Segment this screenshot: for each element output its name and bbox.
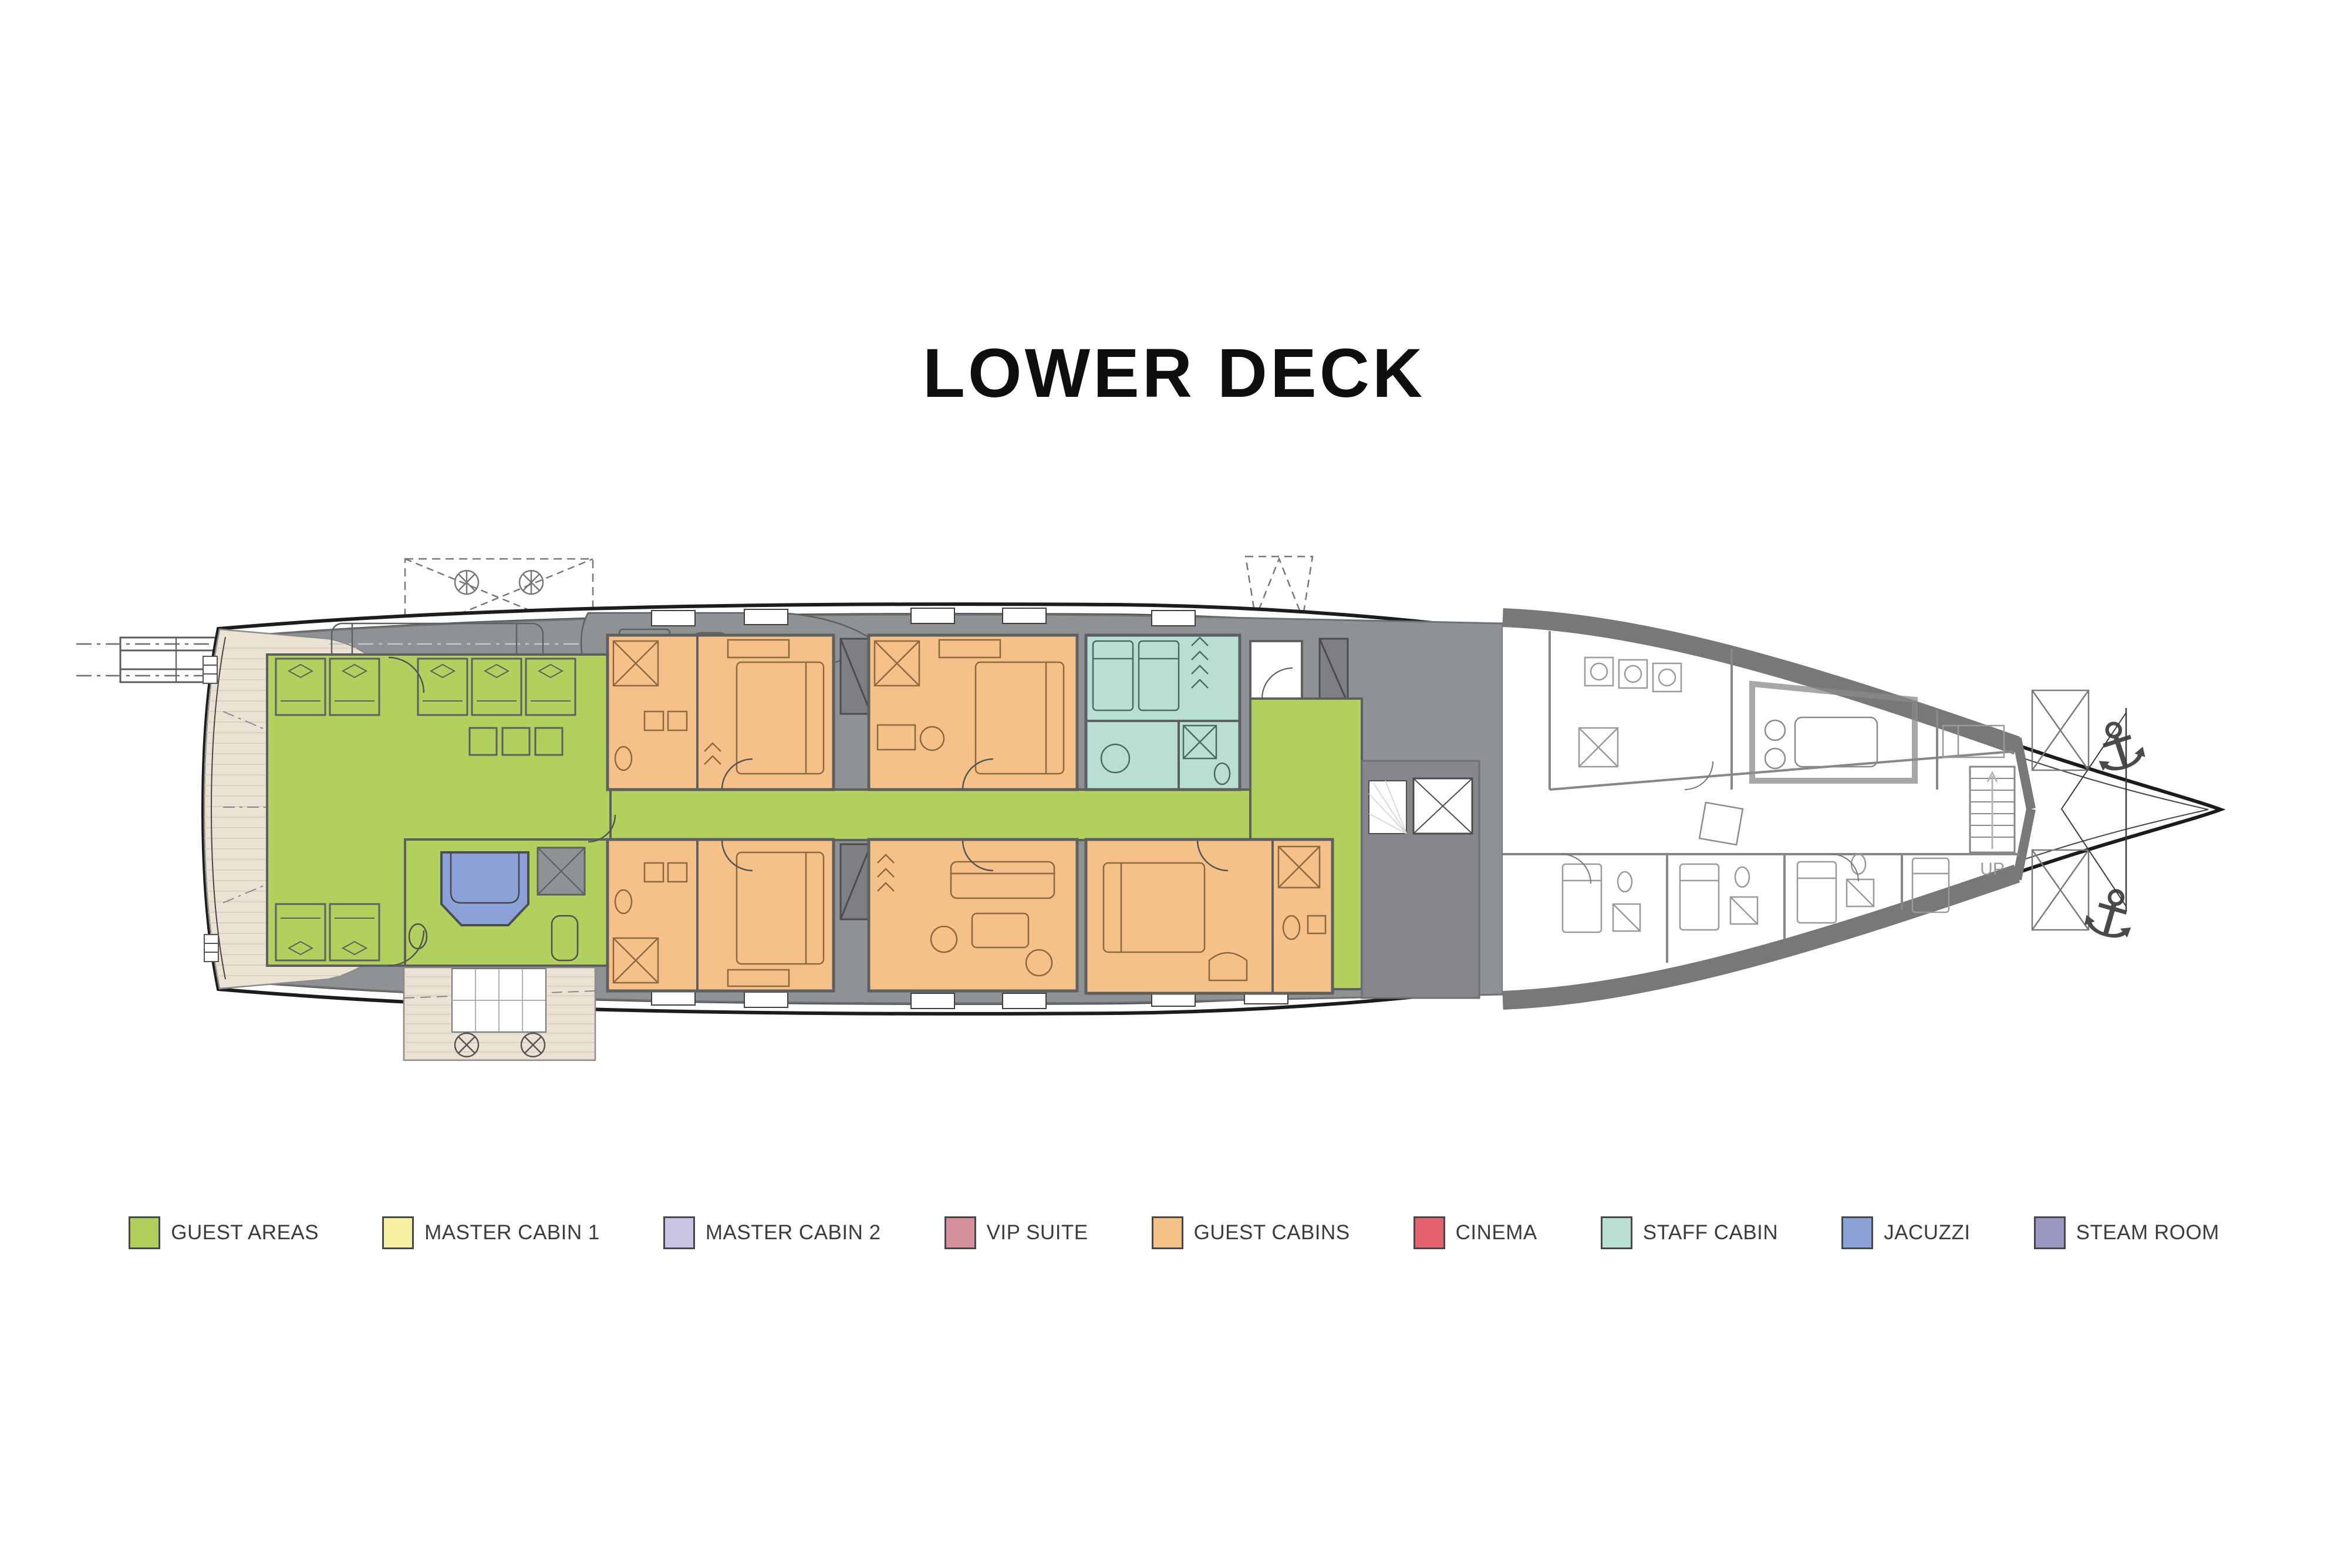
spa-shower	[538, 848, 585, 895]
winch-icon	[455, 571, 478, 594]
legend-label: JACUZZI	[1884, 1221, 1970, 1245]
staff-cabin	[1086, 635, 1240, 790]
sun-lounger	[526, 659, 575, 715]
corridor	[610, 790, 1253, 840]
legend-item-master-cabin-1: MASTER CABIN 1	[382, 1216, 600, 1249]
jacuzzi-swatch	[1841, 1216, 1873, 1249]
legend-label: GUEST CABINS	[1194, 1221, 1350, 1245]
page: LOWER DECK	[0, 0, 2348, 1565]
sun-lounger	[276, 659, 325, 715]
legend-label: VIP SUITE	[987, 1221, 1088, 1245]
up-label: UP	[1980, 859, 2005, 879]
legend-label: GUEST AREAS	[171, 1221, 319, 1245]
staff-cabin-swatch	[1601, 1216, 1632, 1249]
crew-area	[1503, 616, 2031, 1002]
steam-room-swatch	[2034, 1216, 2066, 1249]
sun-lounger	[330, 659, 379, 715]
legend-item-staff-cabin: STAFF CABIN	[1601, 1216, 1778, 1249]
vip-suite-swatch	[944, 1216, 976, 1249]
deck-plan-svg: UP ⚓ ⚓	[0, 0, 2348, 1565]
elevator	[1413, 778, 1472, 834]
legend-item-jacuzzi: JACUZZI	[1841, 1216, 1970, 1249]
guest-cabin-3	[608, 839, 834, 991]
cinema-swatch	[1413, 1216, 1445, 1249]
legend-item-guest-areas: GUEST AREAS	[129, 1216, 319, 1249]
legend-item-master-cabin-2: MASTER CABIN 2	[663, 1216, 881, 1249]
vestibule	[1250, 641, 1302, 699]
skylight-grid	[452, 969, 546, 1032]
sun-lounger	[472, 659, 521, 715]
guest-areas-swatch	[129, 1216, 160, 1249]
guest-cabin-5	[1086, 839, 1332, 993]
legend-label: STEAM ROOM	[2076, 1221, 2219, 1245]
sun-lounger	[330, 904, 379, 960]
crew-staircase	[1369, 781, 1406, 834]
legend-label: CINEMA	[1456, 1221, 1537, 1245]
fold-platform-bottom	[404, 967, 595, 1060]
sun-lounger	[418, 659, 467, 715]
winch-icon	[519, 571, 543, 594]
guest-cabin-1	[608, 635, 834, 790]
master-cabin-1-swatch	[382, 1216, 414, 1249]
stair-core	[1362, 761, 1479, 998]
sun-lounger	[276, 904, 325, 960]
legend-item-steam-room: STEAM ROOM	[2034, 1216, 2219, 1249]
legend-item-cinema: CINEMA	[1413, 1216, 1537, 1249]
master-cabin-2-swatch	[663, 1216, 695, 1249]
legend-label: MASTER CABIN 1	[424, 1221, 600, 1245]
legend: GUEST AREAS MASTER CABIN 1 MASTER CABIN …	[0, 1216, 2348, 1249]
guest-cabins-swatch	[1152, 1216, 1183, 1249]
legend-item-guest-cabins: GUEST CABINS	[1152, 1216, 1350, 1249]
legend-label: STAFF CABIN	[1643, 1221, 1778, 1245]
legend-label: MASTER CABIN 2	[706, 1221, 881, 1245]
legend-item-vip-suite: VIP SUITE	[944, 1216, 1088, 1249]
jacuzzi	[441, 852, 528, 925]
deck-plan: UP ⚓ ⚓	[0, 0, 2348, 1565]
bow-staircase	[1970, 767, 2015, 852]
